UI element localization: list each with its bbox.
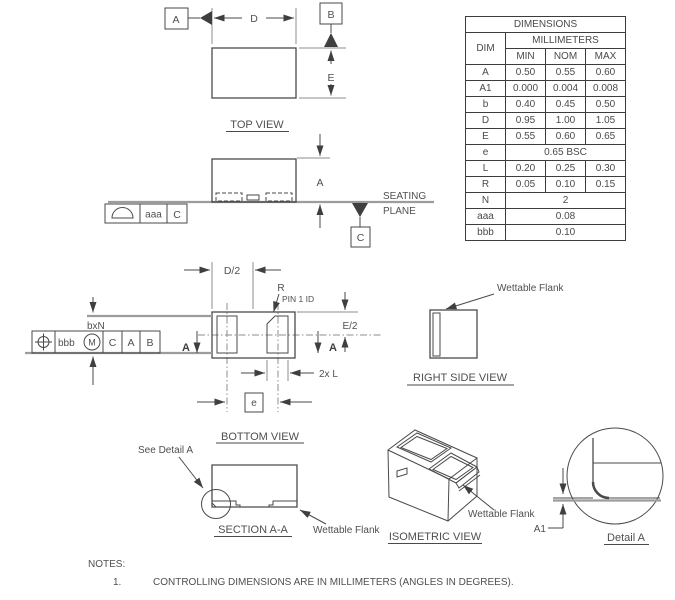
wettable-flank-leader-3 — [463, 485, 494, 510]
table-row: N 2 — [466, 193, 626, 209]
value-cell: 0.65 — [586, 129, 626, 145]
note-1-number: 1. — [113, 577, 121, 588]
table-row: D 0.95 1.00 1.05 — [466, 113, 626, 129]
section-terminal-left — [212, 501, 240, 507]
position-symbol-icon — [35, 334, 52, 351]
col-header-max: MAX — [586, 49, 626, 65]
dim-d2-label: D/2 — [224, 265, 241, 277]
detail-a-bubble — [567, 428, 663, 524]
value-cell: 0.45 — [546, 97, 586, 113]
isometric-view: Wettable Flank ISOMETRIC VIEW — [388, 430, 536, 544]
table-title: DIMENSIONS — [466, 17, 626, 33]
dim-a1-label: A1 — [534, 524, 547, 535]
table-title-row: DIMENSIONS — [466, 17, 626, 33]
datum-a-label: A — [172, 14, 179, 26]
detail-a-view: A1 Detail A — [534, 428, 663, 545]
center-slot — [247, 195, 259, 200]
value-cell: 0.05 — [506, 177, 546, 193]
value-cell: 0.50 — [506, 65, 546, 81]
notes-heading: NOTES: — [88, 559, 125, 570]
note-1-text: CONTROLLING DIMENSIONS ARE IN MILLIMETER… — [153, 577, 514, 588]
section-marker-right: A — [329, 342, 337, 354]
dim-header: DIM — [466, 33, 506, 65]
seating-plane-text-1: SEATING — [383, 191, 426, 202]
package-body-right-side — [430, 310, 477, 358]
dim-l-label: 2x L — [319, 369, 338, 380]
value-cell: 0.55 — [546, 65, 586, 81]
value-cell: 0.25 — [546, 161, 586, 177]
wettable-flank-callout-2: Wettable Flank — [313, 525, 381, 536]
pin1-id-label: PIN 1 ID — [282, 294, 314, 304]
section-marker-left: A — [182, 342, 190, 354]
dim-cell: A1 — [466, 81, 506, 97]
value-cell: 1.00 — [546, 113, 586, 129]
fcf-position-value: bbb — [58, 338, 75, 349]
table-row: E 0.55 0.60 0.65 — [466, 129, 626, 145]
table-row: b 0.40 0.45 0.50 — [466, 97, 626, 113]
table-row: A 0.50 0.55 0.60 — [466, 65, 626, 81]
dim-cell: aaa — [466, 209, 506, 225]
fcf-position-datum2: A — [127, 337, 134, 349]
value-cell: 0.50 — [586, 97, 626, 113]
col-header-nom: NOM — [546, 49, 586, 65]
dim-pitch-label: e — [251, 398, 257, 409]
dimensions-table: DIMENSIONS DIM MILLIMETERS MIN NOM MAX A… — [465, 16, 626, 241]
col-header-min: MIN — [506, 49, 546, 65]
detail-lead-radius — [593, 482, 609, 498]
dim-d-label: D — [250, 13, 258, 25]
value-cell: 1.05 — [586, 113, 626, 129]
value-cell: 0.60 — [586, 65, 626, 81]
iso-side-slot — [397, 468, 407, 477]
value-cell: 0.20 — [506, 161, 546, 177]
section-aa-view: See Detail A SECTION A-A Wettable Flank — [138, 445, 381, 537]
dim-cell: e — [466, 145, 506, 161]
top-view: A D B E TOP VIEW — [165, 3, 346, 132]
table-header-row: DIM MILLIMETERS — [466, 33, 626, 49]
dim-cell: A — [466, 65, 506, 81]
fcf-position: bbb M C A B — [32, 331, 160, 353]
fcf-position-datum3: B — [146, 337, 153, 349]
see-detail-a-callout: See Detail A — [138, 445, 193, 456]
terminal-hidden-left — [216, 193, 242, 201]
profile-of-surface-icon — [112, 208, 133, 218]
dim-a-label: A — [316, 177, 323, 189]
package-outline-drawing: A D B E TOP VIEW A SEATING PLANE — [0, 0, 675, 600]
wettable-flank-strip — [433, 313, 440, 356]
value-cell: 0.15 — [586, 177, 626, 193]
dim-cell: N — [466, 193, 506, 209]
detail-a-title: Detail A — [607, 532, 646, 544]
wettable-flank-callout-3: Wettable Flank — [468, 509, 536, 520]
value-cell: 0.10 — [546, 177, 586, 193]
terminal-hidden-right — [266, 193, 292, 201]
table-row: aaa 0.08 — [466, 209, 626, 225]
wettable-flank-leader-1 — [446, 294, 494, 309]
datum-c-triangle-icon — [352, 203, 368, 217]
value-cell: 0.30 — [586, 161, 626, 177]
section-terminal-right — [269, 501, 297, 507]
value-cell: 0.60 — [546, 129, 586, 145]
unit-header: MILLIMETERS — [506, 33, 626, 49]
fcf-profile-datum: C — [173, 209, 181, 221]
isometric-view-title: ISOMETRIC VIEW — [389, 531, 482, 543]
table-row: A1 0.000 0.004 0.008 — [466, 81, 626, 97]
wettable-flank-leader-2 — [300, 510, 326, 524]
wettable-flank-callout-1: Wettable Flank — [497, 283, 565, 294]
package-body-top — [212, 48, 296, 98]
datum-a-triangle-icon — [200, 11, 212, 25]
top-view-title: TOP VIEW — [230, 119, 284, 131]
section-aa-title: SECTION A-A — [218, 524, 288, 536]
value-cell-span: 2 — [506, 193, 626, 209]
value-cell-span: 0.10 — [506, 225, 626, 241]
dim-bxn-label: bxN — [87, 321, 105, 332]
bottom-view: D/2 R PIN 1 ID E/2 bxN bbb — [25, 262, 383, 443]
see-detail-a-leader — [179, 457, 203, 488]
dim-cell: bbb — [466, 225, 506, 241]
package-body-side — [212, 159, 296, 202]
dim-cell: L — [466, 161, 506, 177]
fcf-position-datum1: C — [109, 337, 117, 349]
dim-r-label: R — [277, 283, 284, 294]
bottom-view-title: BOTTOM VIEW — [221, 431, 300, 443]
datum-b-triangle-icon — [324, 33, 338, 47]
value-cell-span: 0.08 — [506, 209, 626, 225]
table-row: bbb 0.10 — [466, 225, 626, 241]
value-cell: 0.004 — [546, 81, 586, 97]
value-cell: 0.95 — [506, 113, 546, 129]
value-cell: 0.008 — [586, 81, 626, 97]
table-row: R 0.05 0.10 0.15 — [466, 177, 626, 193]
value-cell: 0.55 — [506, 129, 546, 145]
fcf-profile-symbol-box — [105, 204, 140, 223]
seating-plane-text-2: PLANE — [383, 206, 416, 217]
datum-c-label: C — [357, 232, 365, 244]
fcf-profile-value: aaa — [145, 210, 162, 221]
dim-cell: D — [466, 113, 506, 129]
fcf-position-modifier: M — [88, 338, 96, 348]
fcf-profile: aaa C — [105, 204, 187, 223]
dim-e2-label: E/2 — [342, 321, 357, 332]
value-cell: 0.000 — [506, 81, 546, 97]
side-view: A SEATING PLANE C aaa C — [105, 134, 434, 247]
dim-cell: b — [466, 97, 506, 113]
value-cell-span: 0.65 BSC — [506, 145, 626, 161]
dim-cell: R — [466, 177, 506, 193]
table-row: L 0.20 0.25 0.30 — [466, 161, 626, 177]
dim-e-label: E — [327, 72, 334, 84]
detail-a-circle — [202, 490, 231, 519]
dim-cell: E — [466, 129, 506, 145]
table-row: e 0.65 BSC — [466, 145, 626, 161]
right-side-view-title: RIGHT SIDE VIEW — [413, 372, 508, 384]
right-side-view: Wettable Flank RIGHT SIDE VIEW — [407, 283, 565, 385]
value-cell: 0.40 — [506, 97, 546, 113]
datum-b-label: B — [327, 9, 334, 21]
